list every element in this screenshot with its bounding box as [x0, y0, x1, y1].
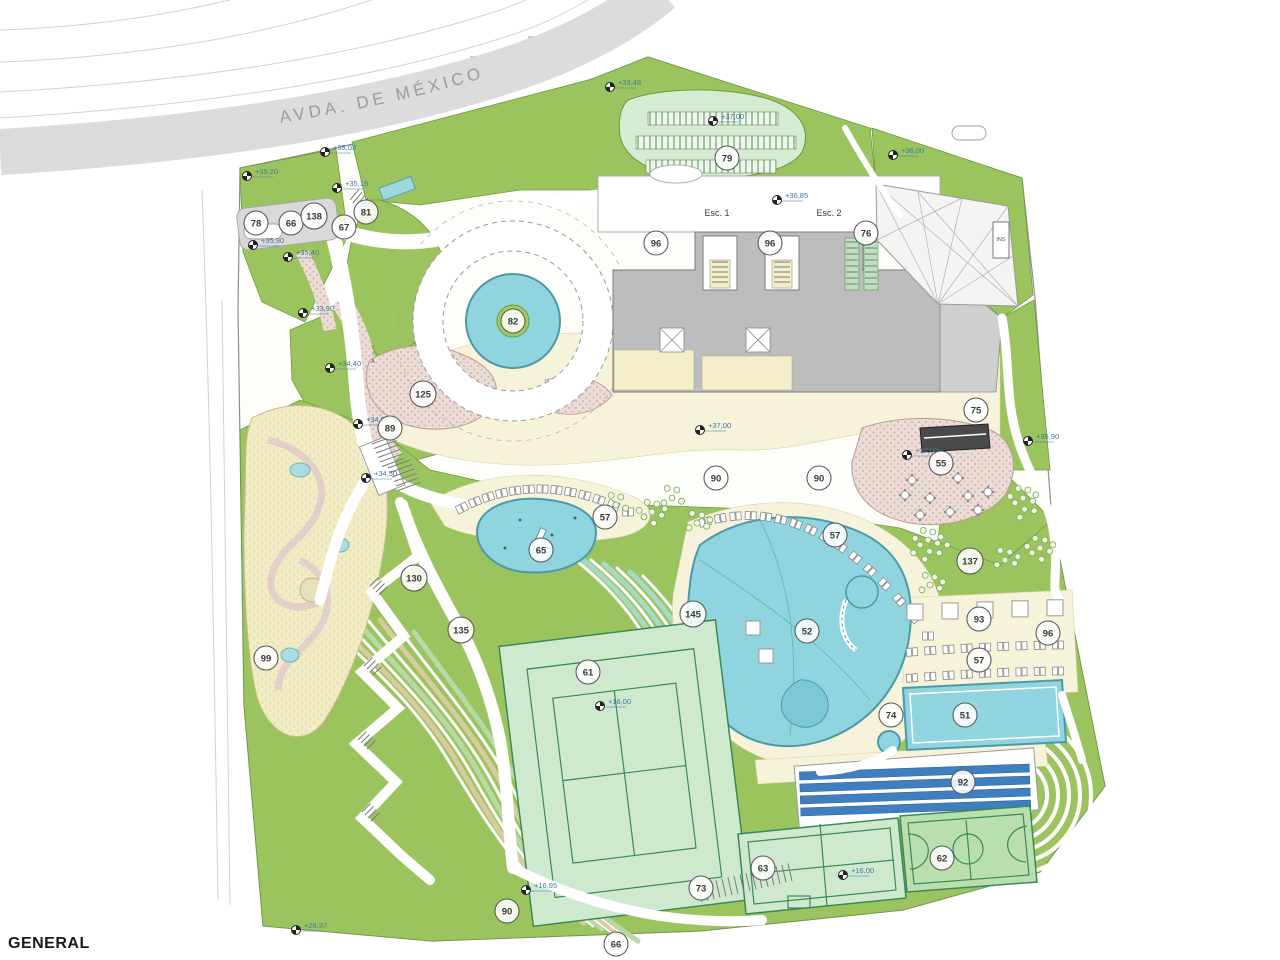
- shrub-icon: [662, 506, 668, 512]
- shrub-icon: [1015, 554, 1021, 560]
- svg-text:+33,90: +33,90: [311, 304, 334, 313]
- svg-text:138: 138: [306, 212, 322, 223]
- zone-label: 79: [715, 146, 739, 170]
- zone-label: 92: [951, 770, 975, 794]
- zone-label: 65: [529, 538, 553, 562]
- shrub-icon: [922, 556, 928, 562]
- shrub-icon: [1020, 495, 1026, 501]
- basketball-court: [900, 806, 1037, 892]
- zone-label: 66: [604, 932, 628, 956]
- shrub-icon: [694, 520, 700, 526]
- zone-label: 81: [354, 200, 378, 224]
- svg-text:+34,50: +34,50: [374, 469, 397, 478]
- shrub-icon: [704, 523, 710, 529]
- shrub-icon: [699, 512, 705, 518]
- svg-text:66: 66: [286, 219, 297, 230]
- svg-text:92: 92: [958, 778, 969, 789]
- zone-label: 90: [495, 899, 519, 923]
- svg-text:+35,90: +35,90: [261, 236, 284, 245]
- shrub-icon: [912, 535, 918, 541]
- sheet-title: GENERAL: [8, 935, 90, 952]
- zone-label: 137: [957, 548, 983, 574]
- zone-label: 96: [644, 231, 668, 255]
- shrub-icon: [661, 500, 667, 506]
- svg-text:90: 90: [502, 907, 513, 918]
- shrub-icon: [1033, 492, 1039, 498]
- svg-text:90: 90: [711, 474, 722, 485]
- shrub-icon: [669, 495, 675, 501]
- shrub-icon: [686, 525, 692, 531]
- svg-text:55: 55: [936, 459, 947, 470]
- parasol-icon: [1012, 601, 1028, 617]
- svg-text:+16,00: +16,00: [851, 866, 874, 875]
- parasol-icon: [942, 603, 958, 619]
- svg-text:79: 79: [722, 154, 733, 165]
- zone-label: 89: [378, 416, 402, 440]
- svg-text:+16,00: +16,00: [608, 697, 631, 706]
- svg-text:135: 135: [453, 626, 470, 637]
- shrub-icon: [930, 529, 936, 535]
- shrub-icon: [654, 501, 660, 507]
- svg-text:93: 93: [974, 615, 985, 626]
- shrub-icon: [927, 548, 933, 554]
- svg-text:96: 96: [1043, 629, 1054, 640]
- shrub-icon: [1007, 493, 1013, 499]
- shrub-icon: [1047, 548, 1053, 554]
- svg-text:+37,00: +37,00: [708, 421, 731, 430]
- shrub-icon: [1025, 487, 1031, 493]
- shrub-icon: [1015, 485, 1021, 491]
- svg-text:137: 137: [962, 557, 978, 568]
- shrub-icon: [925, 537, 931, 543]
- shrub-icon: [994, 562, 1000, 568]
- shrub-icon: [674, 487, 680, 493]
- shrub-icon: [689, 510, 695, 516]
- zone-label: 96: [1036, 621, 1060, 645]
- text-label: Esc. 1: [704, 208, 729, 218]
- zone-label: 75: [964, 398, 988, 422]
- shrub-icon: [1017, 514, 1023, 520]
- shrub-icon: [1012, 560, 1018, 566]
- svg-text:+28,37: +28,37: [304, 921, 327, 930]
- shrub-icon: [1031, 508, 1037, 514]
- shrub-icon: [917, 542, 923, 548]
- zone-label: 61: [576, 660, 600, 684]
- zone-label: 96: [758, 231, 782, 255]
- shrub-icon: [641, 514, 647, 520]
- shrub-icon: [1037, 545, 1043, 551]
- svg-text:+35,40: +35,40: [296, 248, 319, 257]
- shrub-icon: [649, 509, 655, 515]
- shrub-icon: [1024, 543, 1030, 549]
- zone-label: 145: [680, 601, 706, 627]
- shrub-icon: [940, 579, 946, 585]
- text-label: Esc. 2: [816, 208, 841, 218]
- shrub-icon: [644, 499, 650, 505]
- svg-text:130: 130: [406, 574, 422, 585]
- svg-text:+35,03: +35,03: [333, 143, 356, 152]
- text-label: INS: [996, 237, 1006, 243]
- parking-lot: [619, 90, 805, 178]
- parasol-icon: [746, 621, 760, 635]
- svg-text:+36,90: +36,90: [1036, 432, 1059, 441]
- svg-text:+34,40: +34,40: [338, 359, 361, 368]
- shrub-icon: [659, 512, 665, 518]
- zone-label: 90: [704, 466, 728, 490]
- zone-label: 73: [689, 876, 713, 900]
- svg-text:+16,95: +16,95: [534, 881, 557, 890]
- svg-text:+33,48: +33,48: [618, 78, 641, 87]
- zone-label: 82: [501, 309, 525, 333]
- svg-text:+35,15: +35,15: [345, 179, 368, 188]
- svg-text:63: 63: [758, 864, 769, 875]
- shrub-icon: [997, 547, 1003, 553]
- shrub-icon: [938, 534, 944, 540]
- svg-text:96: 96: [765, 239, 776, 250]
- shrub-icon: [1042, 537, 1048, 543]
- svg-text:75: 75: [971, 406, 982, 417]
- lap-pool: [903, 680, 1066, 750]
- svg-text:74: 74: [886, 711, 897, 722]
- svg-text:51: 51: [960, 711, 971, 722]
- shrub-icon: [651, 520, 657, 526]
- svg-text:+36,85: +36,85: [785, 191, 808, 200]
- shrub-icon: [1007, 549, 1013, 555]
- shrub-icon: [1032, 535, 1038, 541]
- svg-text:62: 62: [937, 854, 948, 865]
- zone-label: 63: [751, 856, 775, 880]
- svg-text:73: 73: [696, 884, 707, 895]
- shrub-icon: [936, 550, 942, 556]
- site-plan-canvas: AVDA. DE MÉXICO: [0, 0, 1280, 960]
- shrub-icon: [1002, 557, 1008, 563]
- parasol-icon: [907, 604, 923, 620]
- shrub-icon: [932, 574, 938, 580]
- zone-label: 57: [823, 523, 847, 547]
- svg-text:89: 89: [385, 424, 396, 435]
- shrub-icon: [920, 527, 926, 533]
- svg-text:99: 99: [261, 654, 272, 665]
- shrub-icon: [922, 572, 928, 578]
- zone-label: 125: [410, 381, 436, 407]
- svg-text:+35,20: +35,20: [255, 167, 278, 176]
- svg-text:57: 57: [974, 656, 985, 667]
- shrub-icon: [935, 540, 941, 546]
- svg-text:+36,00: +36,00: [901, 146, 924, 155]
- parasol-icon: [1047, 600, 1063, 616]
- svg-text:57: 57: [600, 513, 611, 524]
- svg-text:52: 52: [802, 627, 813, 638]
- zone-label: 76: [854, 221, 878, 245]
- zone-label: 78: [244, 211, 268, 235]
- svg-text:57: 57: [830, 531, 841, 542]
- shrub-icon: [1012, 500, 1018, 506]
- zone-label: 52: [795, 619, 819, 643]
- zone-label: 138: [301, 203, 327, 229]
- shrub-icon: [623, 505, 629, 511]
- svg-text:145: 145: [685, 610, 702, 621]
- shrub-icon: [1022, 506, 1028, 512]
- shrub-icon: [707, 517, 713, 523]
- svg-text:76: 76: [861, 229, 872, 240]
- svg-text:67: 67: [339, 223, 350, 234]
- svg-text:81: 81: [361, 208, 372, 219]
- svg-text:90: 90: [814, 474, 825, 485]
- svg-text:65: 65: [536, 546, 547, 557]
- zone-label: 90: [807, 466, 831, 490]
- shrub-icon: [1030, 498, 1036, 504]
- zone-label: 93: [967, 607, 991, 631]
- svg-text:61: 61: [583, 668, 594, 679]
- shrub-icon: [613, 502, 619, 508]
- zone-label: 67: [332, 215, 356, 239]
- shrub-icon: [919, 587, 925, 593]
- zone-label: 62: [930, 846, 954, 870]
- svg-text:125: 125: [415, 390, 432, 401]
- zone-label: 99: [254, 646, 278, 670]
- zone-label: 57: [967, 648, 991, 672]
- zone-label: 66: [279, 211, 303, 235]
- svg-text:78: 78: [251, 219, 262, 230]
- shrub-icon: [1029, 550, 1035, 556]
- shrub-icon: [664, 485, 670, 491]
- shrub-icon: [944, 542, 950, 548]
- shrub-icon: [679, 498, 685, 504]
- zone-label: 55: [929, 451, 953, 475]
- parasol-icon: [759, 649, 773, 663]
- svg-text:82: 82: [508, 317, 519, 328]
- shrub-icon: [1050, 542, 1056, 548]
- shrub-icon: [927, 582, 933, 588]
- shrub-icon: [911, 550, 917, 556]
- zone-label: 51: [953, 703, 977, 727]
- zone-label: 130: [401, 565, 427, 591]
- shrub-icon: [1039, 556, 1045, 562]
- zone-label: 57: [593, 505, 617, 529]
- shrub-icon: [636, 507, 642, 513]
- shrub-icon: [618, 494, 624, 500]
- svg-text:66: 66: [611, 940, 622, 951]
- svg-text:96: 96: [651, 239, 662, 250]
- svg-text:+37,00: +37,00: [721, 112, 744, 121]
- zone-label: 74: [879, 703, 903, 727]
- shrub-icon: [937, 585, 943, 591]
- zone-label: 135: [448, 617, 474, 643]
- shrub-icon: [608, 492, 614, 498]
